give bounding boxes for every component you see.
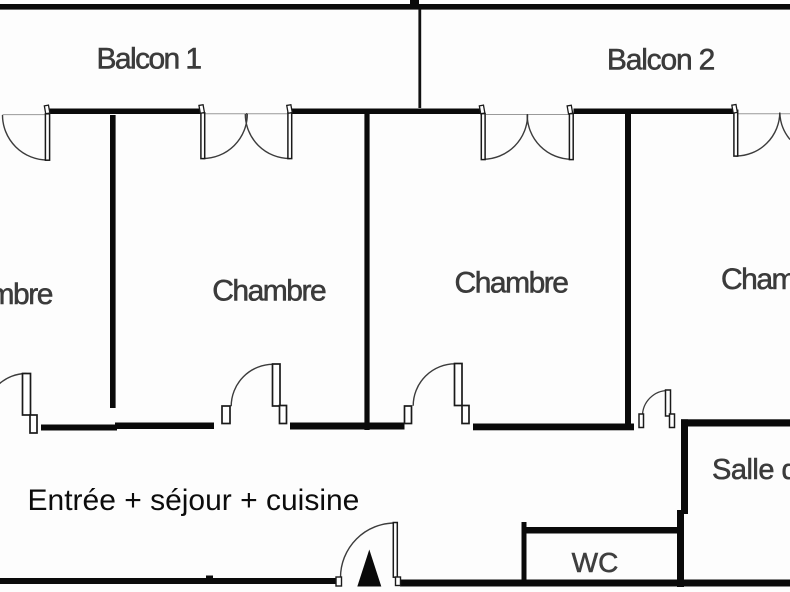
svg-text:Balcon 1: Balcon 1 <box>97 43 202 76</box>
svg-text:Balcon 2: Balcon 2 <box>607 44 715 77</box>
svg-text:Chambre: Chambre <box>455 267 569 300</box>
svg-text:Chambre: Chambre <box>721 263 790 296</box>
svg-text:Salle de bain: Salle de bain <box>712 454 790 486</box>
svg-text:Chambre: Chambre <box>0 278 53 311</box>
svg-text:WC: WC <box>572 547 619 578</box>
svg-text:Chambre: Chambre <box>212 275 326 308</box>
svg-text:Entrée + séjour + cuisine: Entrée + séjour + cuisine <box>28 484 360 517</box>
